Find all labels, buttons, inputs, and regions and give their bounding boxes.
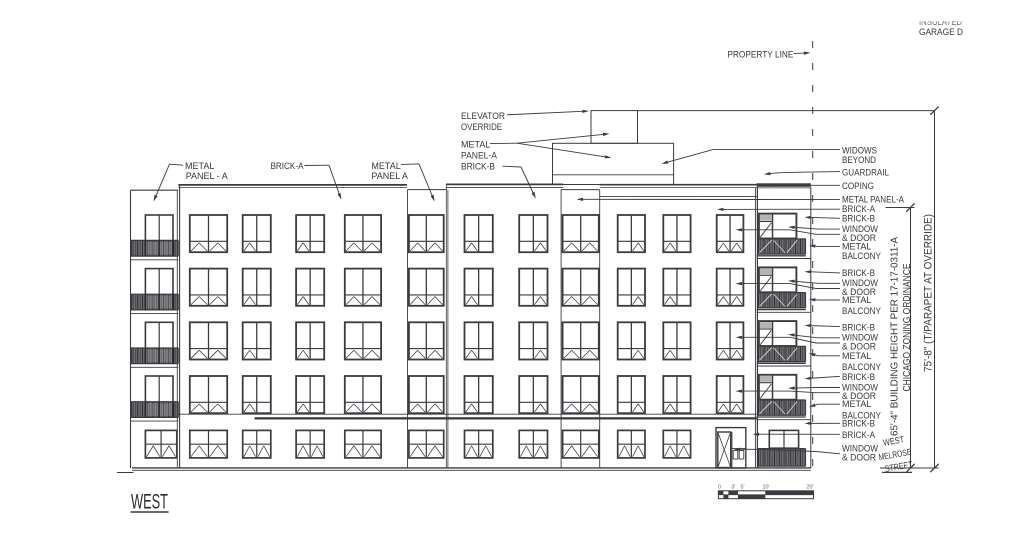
svg-text:METAL: METAL — [185, 161, 214, 171]
svg-text:METAL: METAL — [371, 161, 400, 171]
svg-text:BRICK-B: BRICK-B — [842, 214, 875, 224]
svg-text:METAL: METAL — [842, 399, 871, 409]
svg-text:BEYOND: BEYOND — [842, 155, 876, 165]
svg-text:PANEL A: PANEL A — [371, 171, 408, 181]
svg-text:METAL: METAL — [842, 351, 871, 361]
svg-text:BALCONY: BALCONY — [842, 251, 881, 261]
svg-text:BRICK-A: BRICK-A — [842, 204, 875, 214]
svg-text:BRICK-B: BRICK-B — [842, 372, 875, 382]
svg-text:20': 20' — [806, 485, 813, 491]
svg-text:BRICK-B: BRICK-B — [842, 323, 875, 333]
svg-text:GUARDRAIL: GUARDRAIL — [842, 167, 889, 177]
svg-text:OVERRIDE: OVERRIDE — [461, 122, 502, 132]
svg-text:10': 10' — [762, 485, 769, 491]
svg-text:PROPERTY LINE: PROPERTY LINE — [727, 49, 793, 59]
svg-text:PANEL-A: PANEL-A — [461, 150, 497, 160]
svg-text:BRICK-B: BRICK-B — [461, 162, 495, 172]
svg-text:PANEL - A: PANEL - A — [186, 171, 228, 181]
svg-text:BRICK-B: BRICK-B — [842, 268, 875, 278]
svg-text:BRICK-A: BRICK-A — [842, 430, 875, 440]
svg-text:WIDOWS: WIDOWS — [842, 145, 877, 155]
svg-text:0: 0 — [718, 485, 721, 491]
svg-text:75'-8" (T/PARAPET AT OVERRIDE): 75'-8" (T/PARAPET AT OVERRIDE) — [923, 214, 935, 372]
svg-text:3': 3' — [731, 485, 735, 491]
svg-text:65'-4" BUILDING HEIGHT PER 17-: 65'-4" BUILDING HEIGHT PER 17-17-0311-A — [890, 237, 901, 436]
svg-text:METAL: METAL — [842, 241, 871, 251]
svg-text:METAL: METAL — [842, 295, 871, 305]
svg-text:& DOOR: & DOOR — [842, 453, 876, 463]
svg-text:ELEVATOR: ELEVATOR — [461, 111, 505, 121]
svg-text:WEST: WEST — [131, 490, 168, 514]
svg-text:BALCONY: BALCONY — [842, 362, 881, 372]
svg-text:METAL PANEL-A: METAL PANEL-A — [842, 195, 904, 205]
svg-text:GARAGE D: GARAGE D — [919, 27, 963, 37]
svg-text:BRICK-B: BRICK-B — [842, 419, 875, 429]
svg-text:CHICAGO ZONING ORDINANCE: CHICAGO ZONING ORDINANCE — [902, 263, 913, 391]
svg-text:BALCONY: BALCONY — [842, 306, 881, 316]
svg-text:BRICK-A: BRICK-A — [271, 161, 304, 171]
svg-text:METAL: METAL — [461, 139, 490, 149]
svg-text:5': 5' — [740, 485, 744, 491]
svg-text:COPING: COPING — [842, 181, 874, 191]
